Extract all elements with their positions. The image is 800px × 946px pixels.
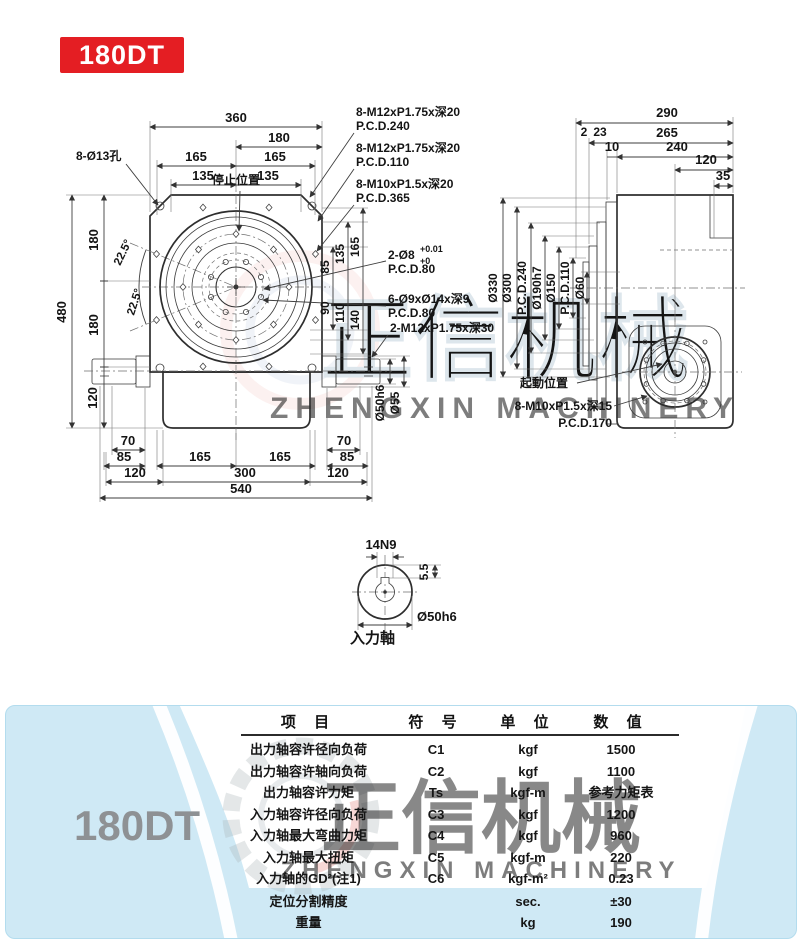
dim-120-bottom-right: 120 — [327, 465, 349, 480]
dim-360: 360 — [225, 110, 247, 125]
ann2-pcd: P.C.D.110 — [356, 155, 409, 169]
dim-shaft-dia-50h6: Ø50h6 — [373, 384, 387, 421]
dim-300: 300 — [234, 465, 256, 480]
spec-symbol: C2 — [406, 762, 466, 782]
spec-item: 出力轴容许径向负荷 — [201, 740, 416, 760]
page: 180DT 正信机械 ZHENGXIN MACHINERY — [0, 0, 800, 946]
ann2-thread: 8-M12xP1.75x深20 — [356, 140, 460, 155]
dim-265: 265 — [656, 125, 678, 140]
spec-item: 定位分割精度 — [201, 892, 416, 912]
spec-row-weight: 重量 kg 190 — [6, 913, 796, 933]
spec-row-accuracy: 定位分割精度 sec. ±30 — [6, 892, 796, 912]
spec-value: 1200 — [563, 805, 679, 825]
dim-120: 120 — [695, 152, 717, 167]
ann-8-m10-thread: 8-M10xP1.5x深15 — [515, 398, 613, 413]
dim-detail-dia-50h6: Ø50h6 — [417, 609, 457, 624]
spec-symbol: C3 — [406, 805, 466, 825]
dim-dia-60: Ø60 — [573, 276, 587, 299]
dim-180-b: 180 — [86, 314, 101, 336]
dim-23: 23 — [593, 125, 607, 139]
dim-240: 240 — [666, 139, 688, 154]
header-underline — [241, 734, 679, 736]
dim-165-bottom-left: 165 — [189, 449, 211, 464]
dim-165-right: 165 — [264, 149, 286, 164]
spec-row-c3: 入力轴容许径向负荷 C3 kgf 1200 — [6, 805, 796, 825]
ann1-pcd: P.C.D.240 — [356, 119, 410, 133]
ann3-pcd: P.C.D.365 — [356, 191, 410, 205]
dim-key-depth-5-5: 5.5 — [417, 563, 431, 580]
dim-140-vert: 140 — [348, 310, 362, 330]
spec-row-c5: 入力轴最大扭矩 C5 kgf-m 220 — [6, 848, 796, 868]
ann5-pcd: P.C.D.80 — [388, 306, 435, 320]
spec-row-c2: 出力轴容许轴向负荷 C2 kgf 1100 — [6, 762, 796, 782]
ann6-thread: 2-M12xP1.75x深30 — [390, 320, 494, 335]
spec-symbol: Ts — [406, 783, 466, 803]
ann1-thread: 8-M12xP1.75x深20 — [356, 104, 460, 119]
spec-row-ts: 出力轴容许力矩 Ts kgf-m 参考力矩表 — [6, 783, 796, 803]
dim-keyway-14n9: 14N9 — [365, 537, 396, 552]
dim-165-bottom-right: 165 — [269, 449, 291, 464]
spec-value: 190 — [563, 913, 679, 933]
watermark-en-text: ZHENGXIN MACHINERY — [270, 392, 740, 425]
spec-symbol: C4 — [406, 826, 466, 846]
dim-165-left: 165 — [185, 149, 207, 164]
spec-value: 0.23 — [563, 869, 679, 889]
dim-540: 540 — [230, 481, 252, 496]
ann-pcd-170: P.C.D.170 — [558, 416, 612, 430]
spec-item: 入力轴的GD²(注1) — [201, 869, 416, 889]
dim-shaft-dia-55: Ø55 — [388, 391, 402, 414]
spec-item: 入力轴最大弯曲力矩 — [201, 826, 416, 846]
spec-value: 参考力矩表 — [563, 783, 679, 803]
spec-item: 重量 — [201, 913, 416, 933]
dim-85-vert: 85 — [318, 260, 332, 274]
ann3-thread: 8-M10xP1.5x深20 — [356, 176, 454, 191]
label-input-shaft: 入力軸 — [350, 629, 395, 647]
front-view: 360 180 165 165 135 135 480 180 180 120 … — [54, 104, 494, 502]
dim-70-right: 70 — [337, 433, 351, 448]
ann4-pcd: P.C.D.80 — [388, 262, 435, 276]
dim-70-left: 70 — [121, 433, 135, 448]
dim-85-right: 85 — [340, 449, 354, 464]
dim-480: 480 — [54, 301, 69, 323]
dim-180: 180 — [268, 130, 290, 145]
spec-row-c4: 入力轴最大弯曲力矩 C4 kgf 960 — [6, 826, 796, 846]
spec-row-c6: 入力轴的GD²(注1) C6 kgf-m² 0.23 — [6, 869, 796, 889]
spec-panel: 正信机械 ZHENGXIN MACHINERY 180DT 项 目 符 号 单 … — [5, 705, 797, 939]
input-shaft-detail: 14N9 5.5 Ø50h6 入力軸 — [350, 537, 457, 647]
dim-135-vert: 135 — [333, 244, 347, 264]
dim-dia-190h7: Ø190h7 — [530, 266, 544, 310]
col-header-item: 项 目 — [201, 713, 416, 733]
spec-row-c1: 出力轴容许径向负荷 C1 kgf 1500 — [6, 740, 796, 760]
spec-symbol: C6 — [406, 869, 466, 889]
dim-180-a: 180 — [86, 229, 101, 251]
spec-item: 出力轴容许力矩 — [201, 783, 416, 803]
dim-dia-330: Ø330 — [486, 273, 500, 303]
dim-110-vert: 110 — [333, 303, 347, 323]
dim-2: 2 — [581, 125, 588, 139]
spec-item: 入力轴最大扭矩 — [201, 848, 416, 868]
drawing-watermark: 正信机械 ZHENGXIN MACHINERY — [226, 256, 740, 425]
angle-22-5-a: 22.5° — [112, 238, 135, 268]
dim-85-left: 85 — [117, 449, 131, 464]
spec-value: 1500 — [563, 740, 679, 760]
dim-90-vert: 90 — [318, 301, 332, 315]
col-header-value: 数 值 — [563, 713, 679, 733]
dim-120-bottom-left: 120 — [124, 465, 146, 480]
ann5-holes: 6-Ø9xØ14x深9 — [388, 291, 470, 306]
dim-pcd-110: P.C.D.110 — [558, 261, 572, 314]
dim-290: 290 — [656, 105, 678, 120]
spec-symbol: C1 — [406, 740, 466, 760]
dim-dia-300: Ø300 — [500, 273, 514, 303]
spec-item: 入力轴容许径向负荷 — [201, 805, 416, 825]
dim-35: 35 — [716, 168, 730, 183]
col-header-symbol: 符 号 — [406, 713, 466, 733]
spec-value: 960 — [563, 826, 679, 846]
technical-drawing: 正信机械 ZHENGXIN MACHINERY — [0, 0, 800, 700]
ann4-pin: 2-Ø8 — [388, 248, 415, 262]
spec-value: ±30 — [563, 892, 679, 912]
label-start-position: 起動位置 — [519, 375, 568, 390]
spec-symbol: C5 — [406, 848, 466, 868]
spec-value: 220 — [563, 848, 679, 868]
spec-item: 出力轴容许轴向负荷 — [201, 762, 416, 782]
dim-165-vert: 165 — [348, 237, 362, 257]
dim-120-left: 120 — [85, 387, 100, 409]
dim-135-right: 135 — [257, 168, 279, 183]
label-stop-position: 停止位置 — [212, 172, 260, 187]
dim-10: 10 — [605, 139, 619, 154]
label-8-d13-holes: 8-Ø13孔 — [76, 149, 121, 163]
dim-135-left: 135 — [192, 168, 214, 183]
spec-value: 1100 — [563, 762, 679, 782]
ann4-tolerance-upper: +0.01 — [420, 244, 443, 254]
dim-dia-150: Ø150 — [544, 273, 558, 303]
dim-pcd-240: P.C.D.240 — [515, 261, 529, 315]
